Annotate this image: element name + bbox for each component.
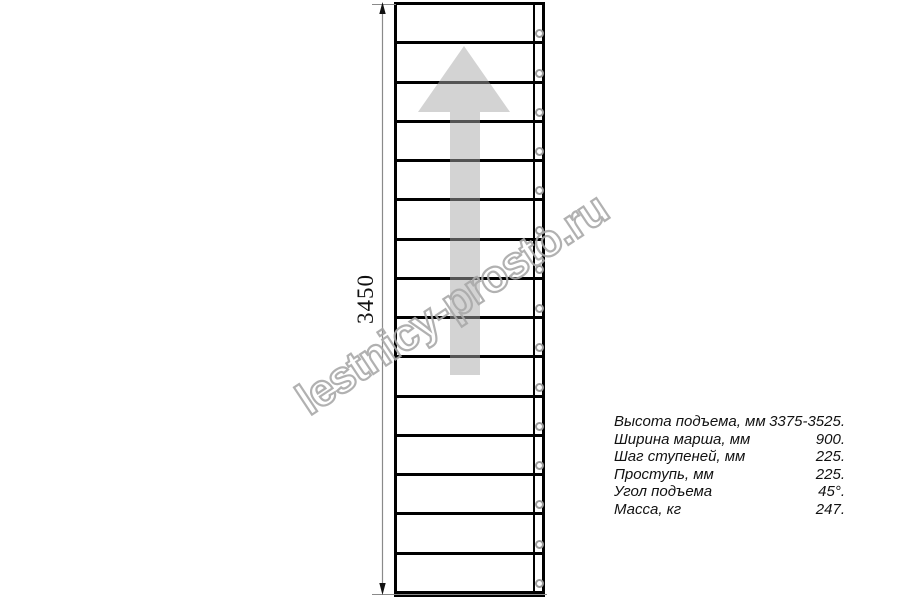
spec-label: Проступь, мм — [614, 466, 714, 484]
fastener-hole-icon — [535, 29, 544, 38]
spec-label: Шаг ступеней, мм — [614, 448, 745, 466]
fastener-hole-icon — [535, 579, 544, 588]
spec-label: Высота подъема, мм — [614, 413, 766, 431]
tread-row — [397, 5, 542, 44]
spec-value: 3375-3525. — [769, 413, 845, 431]
fastener-hole-icon — [535, 186, 544, 195]
drawing-canvas: 3450 lestnicy-prosto.ru Высота подъема, … — [0, 0, 900, 600]
specs-table: Высота подъема, мм 3375-3525. Ширина мар… — [614, 413, 845, 519]
tread-row — [397, 358, 542, 397]
tread-row — [397, 476, 542, 515]
fastener-hole-icon — [535, 500, 544, 509]
tread-row — [397, 555, 542, 594]
spec-value: 247. — [816, 501, 845, 519]
tread-row — [397, 84, 542, 123]
dimension-arrow-top-icon — [379, 2, 385, 14]
spec-row: Высота подъема, мм 3375-3525. — [614, 413, 845, 431]
fastener-hole-icon — [535, 540, 544, 549]
fastener-hole-icon — [535, 108, 544, 117]
fastener-hole-icon — [535, 343, 544, 352]
tread-row — [397, 123, 542, 162]
fastener-hole-icon — [535, 383, 544, 392]
spec-row: Ширина марша, мм 900. — [614, 431, 845, 449]
spec-row: Проступь, мм 225. — [614, 466, 845, 484]
tread-row — [397, 398, 542, 437]
fastener-hole-icon — [535, 69, 544, 78]
spec-row: Шаг ступеней, мм 225. — [614, 448, 845, 466]
spec-label: Угол подъема — [614, 483, 712, 501]
spec-row: Угол подъема 45°. — [614, 483, 845, 501]
tread-row — [397, 44, 542, 83]
fastener-hole-icon — [535, 422, 544, 431]
spec-value: 45°. — [818, 483, 845, 501]
spec-value: 900. — [816, 431, 845, 449]
fastener-hole-icon — [535, 304, 544, 313]
fastener-hole-icon — [535, 147, 544, 156]
spec-value: 225. — [816, 448, 845, 466]
spec-row: Масса, кг 247. — [614, 501, 845, 519]
spec-label: Масса, кг — [614, 501, 681, 519]
fastener-hole-icon — [535, 461, 544, 470]
spec-value: 225. — [816, 466, 845, 484]
tread-row — [397, 515, 542, 554]
spec-label: Ширина марша, мм — [614, 431, 750, 449]
tread-row — [397, 437, 542, 476]
dimension-label: 3450 — [353, 274, 379, 324]
tread-row — [397, 162, 542, 201]
dimension-arrow-bottom-icon — [379, 583, 385, 595]
